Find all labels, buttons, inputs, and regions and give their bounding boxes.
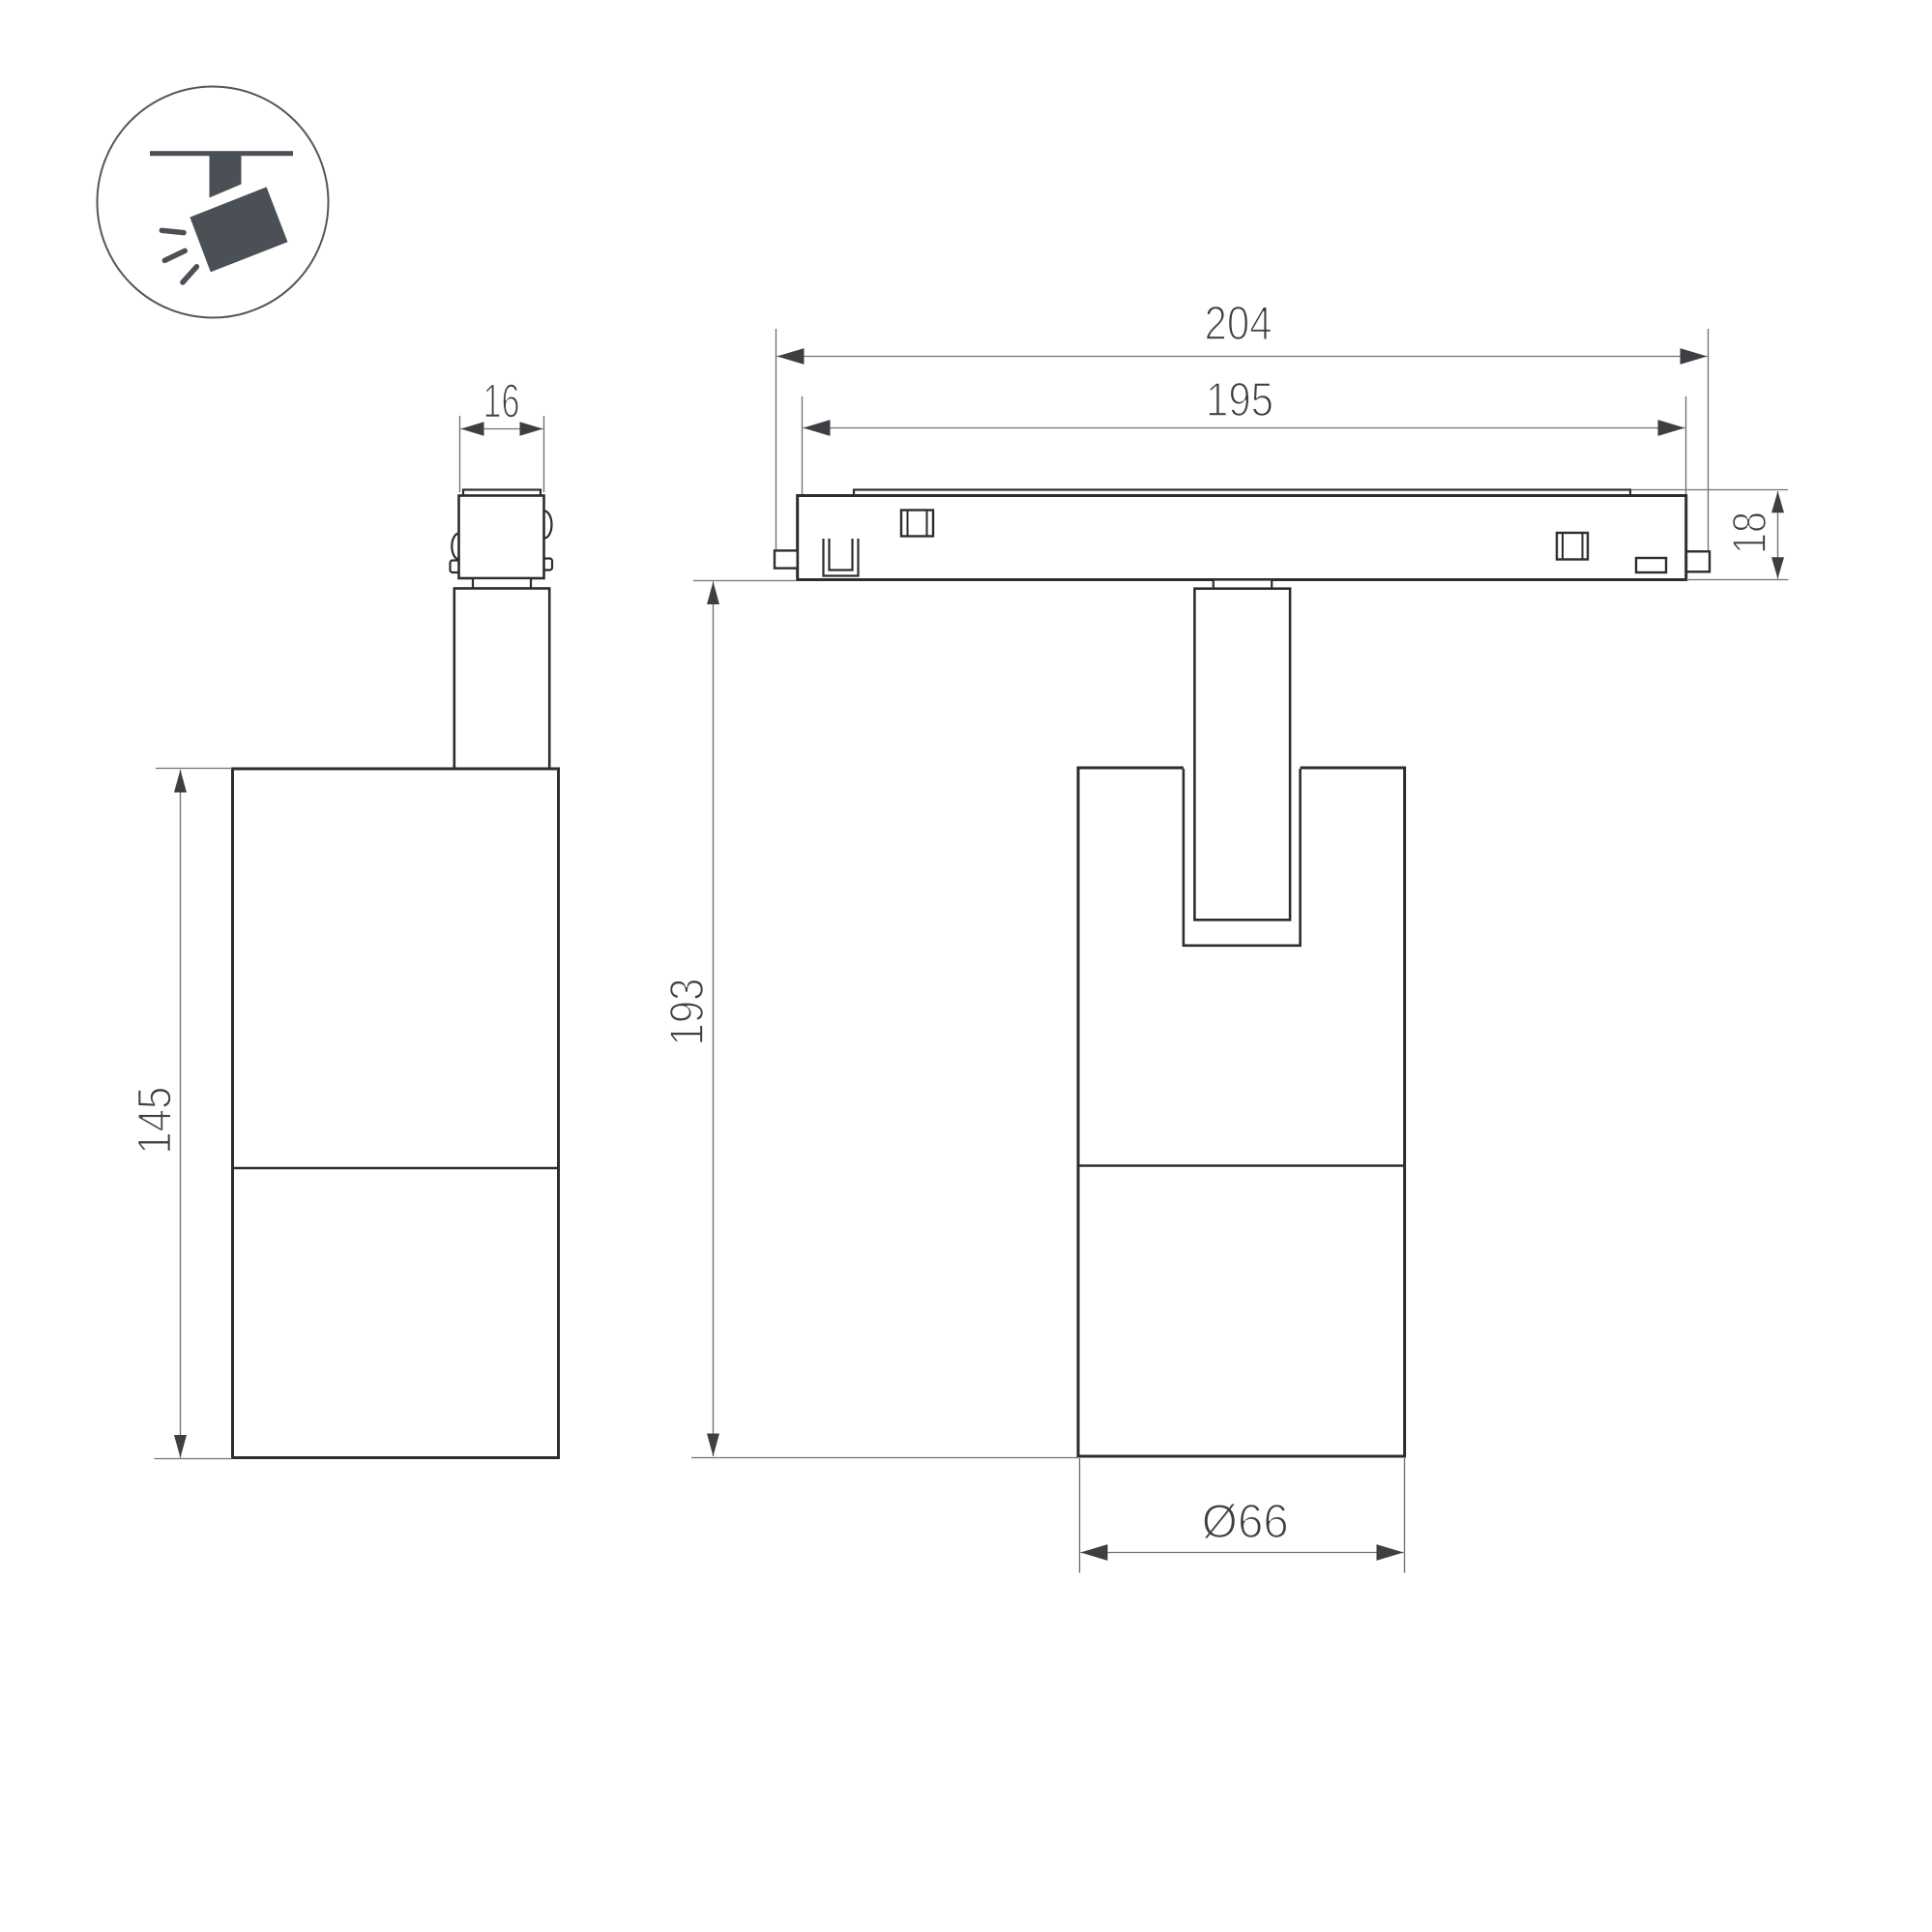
svg-text:195: 195	[1206, 374, 1273, 426]
svg-text:204: 204	[1205, 298, 1273, 350]
svg-text:16: 16	[483, 376, 520, 428]
svg-text:193: 193	[661, 979, 714, 1046]
svg-text:18: 18	[1724, 512, 1776, 554]
svg-text:Ø66: Ø66	[1202, 1496, 1289, 1548]
svg-text:145: 145	[130, 1087, 182, 1155]
